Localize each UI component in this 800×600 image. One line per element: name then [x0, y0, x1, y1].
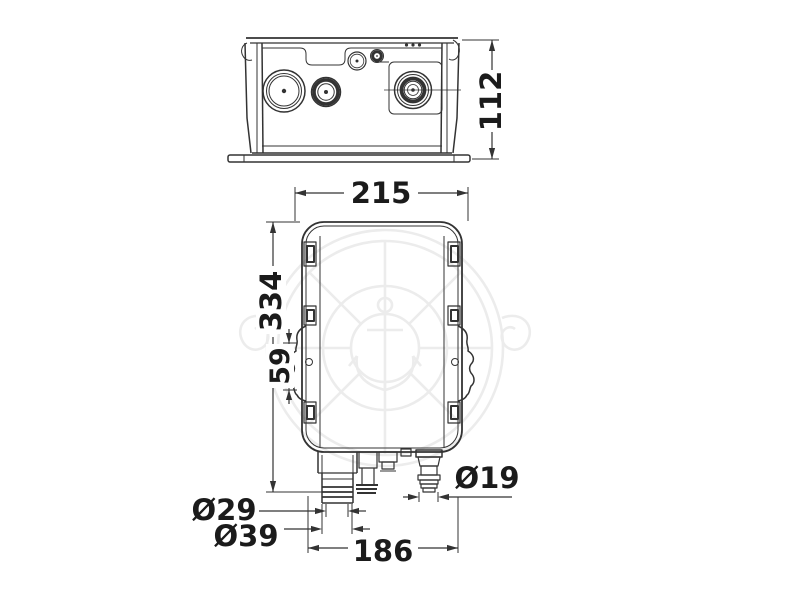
- watermark-anchor-icon: [349, 298, 421, 390]
- right-port-assembly: [374, 62, 461, 114]
- dim-186: 186: [308, 496, 458, 568]
- dim-59: 59: [265, 329, 297, 404]
- vent-dots: [405, 43, 421, 46]
- large-port: [263, 70, 305, 112]
- top-view: 112: [228, 38, 508, 162]
- tiny-port: [371, 50, 384, 63]
- medium-port: [312, 78, 341, 107]
- dim-112-label: 112: [474, 71, 508, 132]
- dim-19-label: Ø19: [454, 461, 519, 495]
- bottom-fittings: [318, 449, 442, 503]
- dim-215-label: 215: [351, 176, 412, 210]
- hose-barb-fitting: [416, 450, 442, 492]
- dim-59-label: 59: [265, 347, 296, 385]
- top-view-ports: [263, 43, 461, 114]
- small-port: [348, 52, 366, 70]
- finned-fitting: [356, 452, 378, 493]
- side-clips: [304, 242, 460, 423]
- technical-drawing: 112: [0, 0, 800, 600]
- dim-112: 112: [462, 40, 508, 159]
- dim-334-label: 334: [254, 271, 288, 332]
- outlet-fitting-left: [318, 452, 357, 503]
- dim-39-label: Ø39: [213, 519, 278, 553]
- technical-drawing-page: 112: [0, 0, 800, 600]
- top-view-rim: [246, 38, 458, 153]
- top-view-base-plate: [228, 155, 470, 162]
- dim-186-label: 186: [353, 534, 414, 568]
- dim-215: 215: [295, 176, 468, 221]
